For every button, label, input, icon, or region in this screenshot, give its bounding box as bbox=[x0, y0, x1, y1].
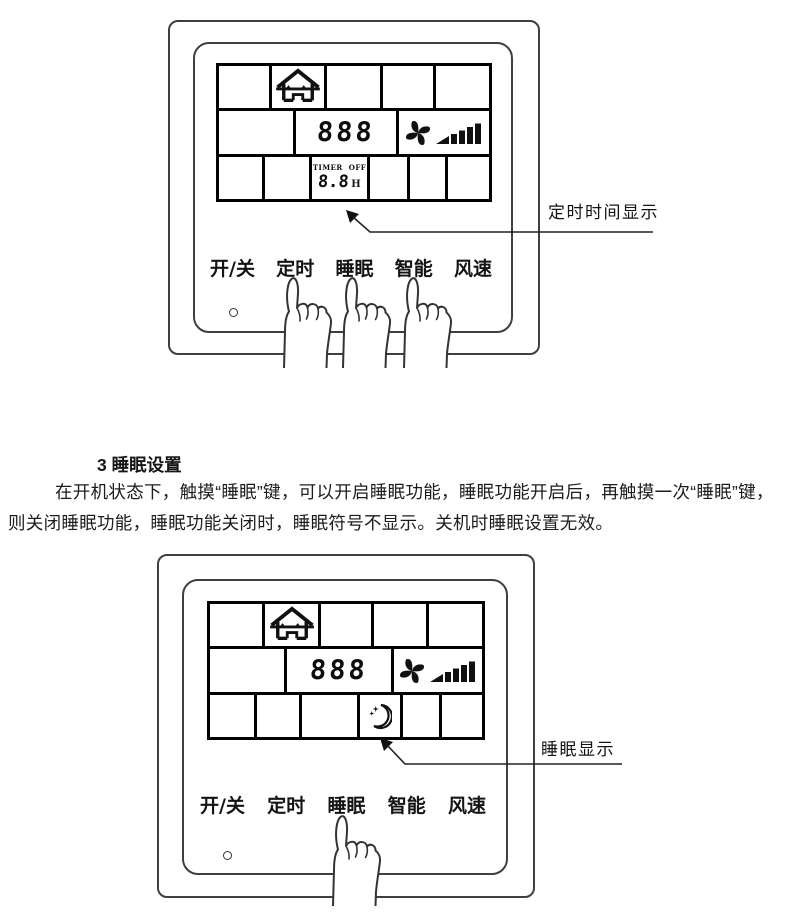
timer-hours-value: 8.8 bbox=[318, 172, 350, 192]
lcd-cell bbox=[210, 649, 284, 691]
lcd-cell bbox=[257, 695, 299, 737]
pointing-hand-icon bbox=[394, 276, 458, 368]
lcd-cell bbox=[265, 157, 309, 199]
fan-speed-icon bbox=[398, 655, 478, 685]
lcd-cell bbox=[436, 66, 489, 108]
callout-arrow-icon bbox=[340, 204, 656, 238]
lcd-cell bbox=[210, 604, 262, 646]
fan-speed-button[interactable]: 风速 bbox=[454, 254, 492, 281]
manual-page: 888 bbox=[0, 0, 790, 916]
lcd-cell bbox=[370, 157, 407, 199]
lcd-cell-timer: TIMER OFF 8.8 H bbox=[312, 157, 367, 199]
lcd-cell bbox=[410, 157, 445, 199]
lcd-display: 888 bbox=[216, 63, 492, 202]
sleep-moon-icon bbox=[368, 702, 392, 730]
lcd-cell-temperature: 888 bbox=[296, 111, 396, 153]
power-button[interactable]: 开/关 bbox=[200, 791, 245, 818]
temperature-display: 888 bbox=[316, 117, 376, 148]
fresh-air-house-icon bbox=[275, 68, 321, 106]
timer-button[interactable]: 定时 bbox=[267, 791, 305, 818]
lcd-cell-fresh-air bbox=[272, 66, 323, 108]
lcd-cell-fan-speed bbox=[394, 649, 482, 691]
lcd-cell bbox=[219, 157, 262, 199]
lcd-cell bbox=[210, 695, 254, 737]
lcd-cell-fresh-air bbox=[265, 604, 317, 646]
lcd-cell bbox=[442, 695, 482, 737]
lcd-cell bbox=[219, 111, 293, 153]
callout-arrow-icon bbox=[374, 732, 628, 770]
timer-display: TIMER OFF 8.8 H bbox=[312, 163, 367, 192]
fan-speed-button[interactable]: 风速 bbox=[448, 791, 486, 818]
lcd-cell-fan-speed bbox=[399, 111, 489, 153]
lcd-cell bbox=[321, 604, 372, 646]
lcd-display: 888 bbox=[207, 601, 485, 740]
smart-button[interactable]: 智能 bbox=[388, 791, 426, 818]
power-indicator-dot bbox=[229, 308, 238, 317]
lcd-cell-temperature: 888 bbox=[287, 649, 391, 691]
timer-off-label: OFF bbox=[349, 163, 367, 172]
power-indicator-dot bbox=[223, 851, 232, 860]
pointing-hand-icon bbox=[274, 276, 338, 368]
power-button[interactable]: 开/关 bbox=[210, 254, 255, 281]
lcd-cell bbox=[302, 695, 357, 737]
timer-label: TIMER bbox=[313, 163, 343, 172]
temperature-display: 888 bbox=[309, 655, 369, 686]
lcd-cell bbox=[383, 66, 433, 108]
lcd-cell bbox=[403, 695, 439, 737]
fresh-air-house-icon bbox=[269, 606, 315, 644]
timer-hours-unit: H bbox=[351, 179, 360, 190]
lcd-cell-sleep bbox=[360, 695, 401, 737]
section-heading: 3 睡眠设置 bbox=[97, 452, 182, 477]
section-paragraph: 在开机状态下，触摸“睡眠”键，可以开启睡眠功能，睡眠功能开启后，再触摸一次“睡眠… bbox=[8, 477, 782, 539]
lcd-cell bbox=[327, 66, 380, 108]
pointing-hand-icon bbox=[333, 276, 397, 368]
lcd-cell bbox=[448, 157, 489, 199]
pointing-hand-icon bbox=[323, 814, 387, 906]
lcd-cell bbox=[374, 604, 425, 646]
fan-speed-icon bbox=[404, 117, 484, 147]
lcd-cell bbox=[429, 604, 482, 646]
lcd-cell bbox=[219, 66, 269, 108]
